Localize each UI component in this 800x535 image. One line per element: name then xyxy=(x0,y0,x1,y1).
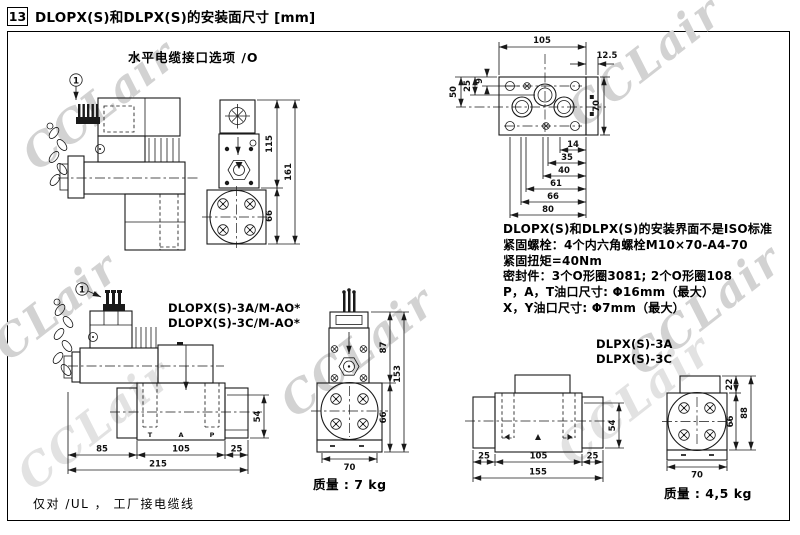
dim-66-label: 66 xyxy=(265,210,275,222)
dim-87-label: 87 xyxy=(379,342,389,354)
dim-153-label: 153 xyxy=(393,365,403,383)
dim-66-front-label: 66 xyxy=(379,412,389,424)
spec-note-line: X，Y油口尺寸: Φ7mm（最大） xyxy=(503,301,772,317)
dim-25-label: 25 xyxy=(463,80,473,92)
page-title: DLOPX(S)和DLPX(S)的安装面尺寸 [mm] xyxy=(35,6,315,26)
dim-80-label: 80 xyxy=(542,205,554,215)
cable-option-caption: 水平电缆接口选项 /O xyxy=(128,47,259,66)
dim-40-label: 40 xyxy=(558,166,570,176)
dlopx-mass-label: 质量 : 7 kg xyxy=(313,474,387,493)
footer-note: 仅对 /UL ， 工厂接电缆线 xyxy=(33,495,194,512)
spec-note-line: DLOPX(S)和DLPX(S)的安装界面不是ISO标准 xyxy=(503,222,772,238)
dim-50-label: 50 xyxy=(449,86,459,98)
callout-1-label: 1 xyxy=(73,77,79,87)
spec-notes: DLOPX(S)和DLPX(S)的安装界面不是ISO标准 紧固螺栓：4个内六角螺… xyxy=(503,222,772,317)
spec-note-line: 紧固螺栓：4个内六角螺栓M10×70-A4-70 xyxy=(503,238,772,254)
callout-1-label: 1 xyxy=(79,286,85,296)
spec-note-line: 紧固扭矩=40Nm xyxy=(503,254,772,270)
model-label: DLPX(S)-3A xyxy=(596,337,673,352)
dlpx-dim-70-label: 70 xyxy=(691,471,703,481)
dlopx-model-labels: DLOPX(S)-3A/M-AO* DLOPX(S)-3C/M-AO* xyxy=(168,301,301,331)
dim-105-label: 105 xyxy=(533,36,551,46)
dim-70-label: 70 xyxy=(592,100,602,112)
dim-105-side-label: 105 xyxy=(172,445,190,455)
section-number-box: 13 xyxy=(7,7,28,26)
dlpx-dim-25-left-label: 25 xyxy=(478,452,490,462)
dim-54-label: 54 xyxy=(253,411,263,423)
spec-note-line: P，A，T油口尺寸: Φ16mm（最大） xyxy=(503,285,772,301)
port-t-label: T xyxy=(148,431,153,439)
dlpx-dim-155-label: 155 xyxy=(529,468,547,478)
dlpx-dim-66-label: 66 xyxy=(726,416,736,428)
dlpx-dim-25-right-label: 25 xyxy=(587,452,599,462)
spec-note-line: 密封件：3个O形圈3081; 2个O形圈108 xyxy=(503,269,772,285)
dim-85-label: 85 xyxy=(96,445,108,455)
page-header: 13 DLOPX(S)和DLPX(S)的安装面尺寸 [mm] xyxy=(7,6,315,26)
dlopx-front-view: 87 153 66 70 xyxy=(311,288,409,473)
dlpx-dim-54-label: 54 xyxy=(608,420,618,432)
port-p-label: P xyxy=(210,431,215,439)
dim-25-side-label: 25 xyxy=(231,445,243,455)
dim-14-label: 14 xyxy=(567,140,579,150)
dim-115-label: 115 xyxy=(265,135,275,153)
dim-161-label: 161 xyxy=(284,163,294,181)
dim-61-label: 61 xyxy=(550,179,562,189)
dlpx-dim-22-label: 22 xyxy=(725,379,735,391)
dlpx-front-view: 22 66 88 70 xyxy=(662,376,756,481)
dim-70-front-label: 70 xyxy=(344,463,356,473)
model-label: DLOPX(S)-3C/M-AO* xyxy=(168,316,301,331)
mounting-face-drawing: 105 12.5 9 25 50 70 14 35 40 61 66 80 xyxy=(449,36,618,218)
dim-66-face-label: 66 xyxy=(547,192,559,202)
model-label: DLPX(S)-3C xyxy=(596,352,673,367)
model-label: DLOPX(S)-3A/M-AO* xyxy=(168,301,301,316)
dlpx-model-labels: DLPX(S)-3A DLPX(S)-3C xyxy=(596,337,673,367)
dlopx-cable-option-side-view: 1 xyxy=(47,74,198,250)
dlpx-dim-105-label: 105 xyxy=(530,452,548,462)
dim-35-label: 35 xyxy=(561,153,573,163)
dlopx-front-view-top: 115 161 66 xyxy=(202,100,300,248)
port-a-label: A xyxy=(178,431,183,439)
dim-9-label: 9 xyxy=(475,78,485,84)
dlpx-dim-88-label: 88 xyxy=(740,407,750,419)
dim-12-5-label: 12.5 xyxy=(597,51,618,61)
dlpx-side-view: 54 25 105 25 155 xyxy=(465,375,624,482)
dlpx-mass-label: 质量 : 4,5 kg xyxy=(664,483,752,502)
dim-215-label: 215 xyxy=(149,460,167,470)
